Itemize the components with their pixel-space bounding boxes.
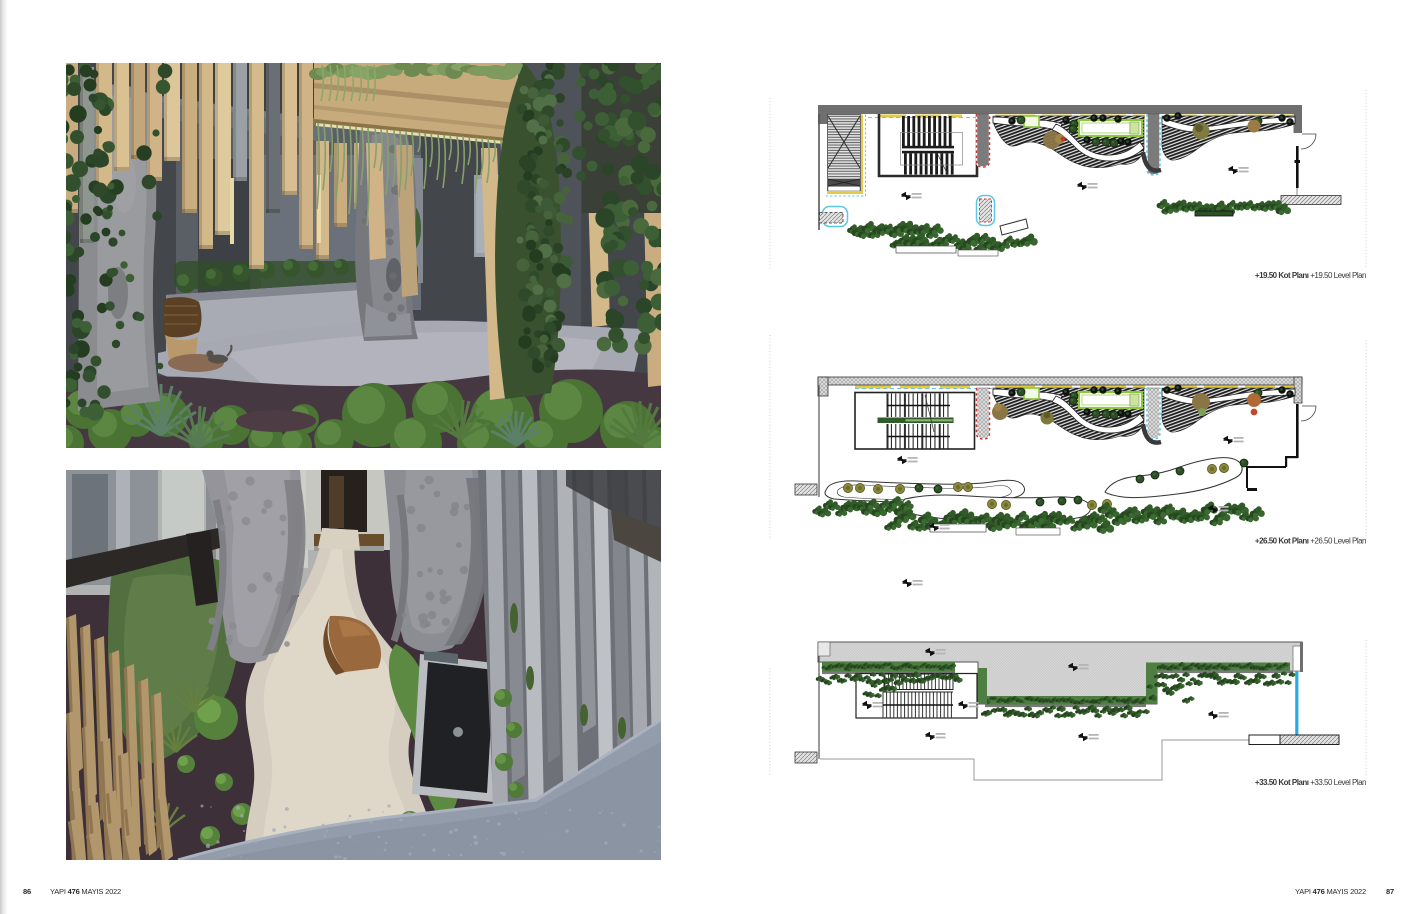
svg-text:+19.50 Kot Planı +19.50 Level: +19.50 Kot Planı +19.50 Level Plan	[1255, 271, 1366, 280]
svg-text:+33.50 Kot Planı +33.50 Level: +33.50 Kot Planı +33.50 Level Plan	[1255, 778, 1366, 787]
svg-text:86: 86	[23, 887, 31, 896]
svg-text:YAPI 476 MAYIS 2022: YAPI 476 MAYIS 2022	[50, 887, 121, 896]
svg-text:87: 87	[1386, 887, 1394, 896]
svg-text:+26.50 Kot Planı +26.50 Level: +26.50 Kot Planı +26.50 Level Plan	[1255, 537, 1366, 546]
svg-text:YAPI 476 MAYIS 2022: YAPI 476 MAYIS 2022	[1295, 887, 1366, 896]
